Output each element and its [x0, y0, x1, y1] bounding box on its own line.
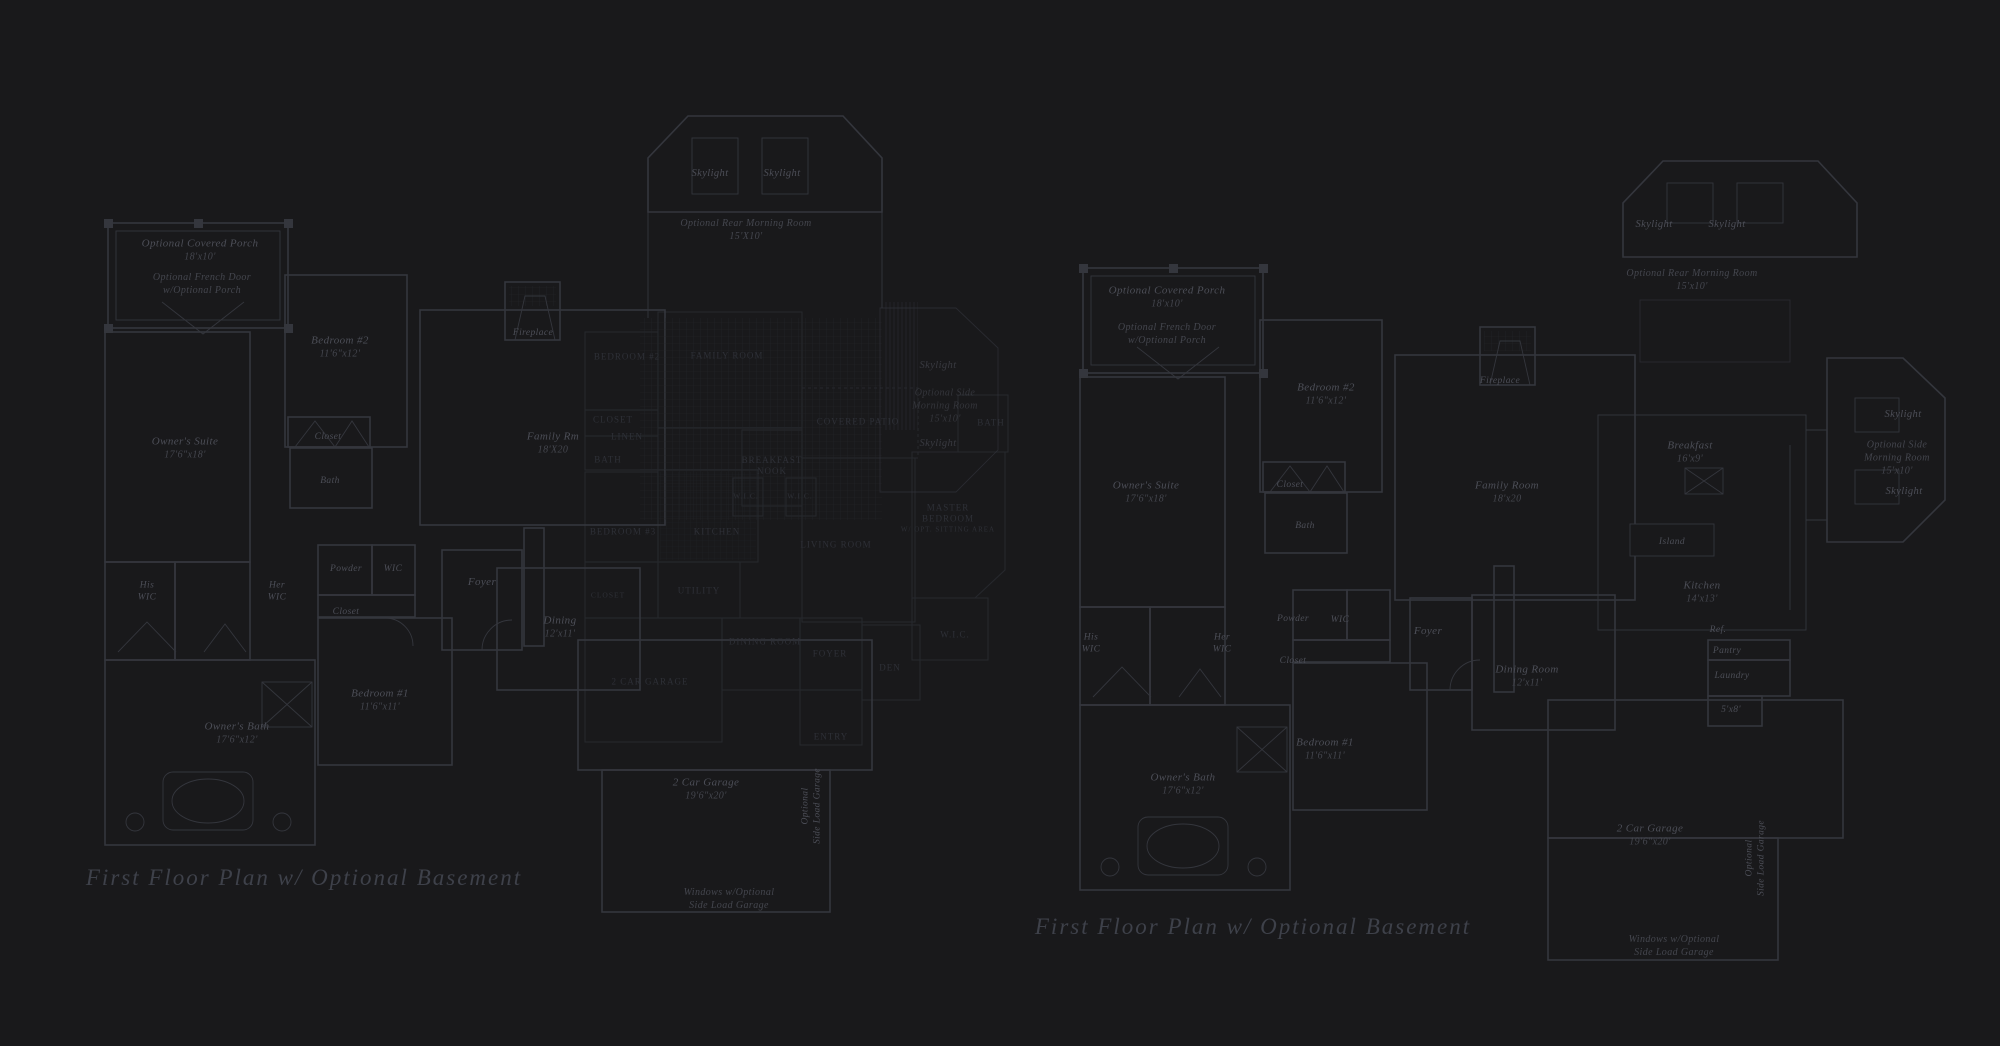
- left-hall-closet-label: Closet: [333, 606, 360, 618]
- dim-wic-a-label: W.I.C.: [733, 491, 759, 500]
- left-powder-label: Powder: [330, 563, 362, 575]
- dim-family-room-label: FAMILY ROOM: [691, 350, 764, 361]
- blueprint-canvas: BEDROOM #2 FAMILY ROOM CLOSET LINEN BATH…: [0, 0, 2000, 1046]
- left-family-room-label: Family Rm18'X20: [527, 429, 579, 456]
- left-fireplace-label: Fireplace: [513, 327, 553, 339]
- right-island-label: Island: [1659, 536, 1685, 548]
- left-plan-title: First Floor Plan w/ Optional Basement: [86, 865, 522, 891]
- left-side-load-garage-label: OptionalSide Load Garage: [800, 768, 825, 844]
- left-bedroom1-label: Bedroom #111'6"x11': [351, 686, 409, 713]
- dim-linen-label: LINEN: [611, 431, 643, 442]
- right-windows-label: Windows w/OptionalSide Load Garage: [1629, 933, 1720, 959]
- left-side-skylight-top-label: Skylight: [919, 359, 956, 373]
- right-porch-dims-label: 5'x8': [1721, 704, 1741, 716]
- right-laundry-label: Laundry: [1715, 670, 1750, 682]
- right-garage-label: 2 Car Garage19'6"x20': [1617, 821, 1684, 848]
- dim-foyer-label: FOYER: [813, 648, 848, 659]
- right-bedroom2-closet-label: Closet: [1277, 479, 1304, 491]
- left-owners-bath-label: Owner's Bath17'6"x12': [205, 719, 270, 746]
- right-breakfast-label: Breakfast16'x9': [1667, 438, 1712, 465]
- dim-bedroom2-label: BEDROOM #2: [594, 351, 660, 362]
- left-her-wic-label: HerWIC: [268, 580, 287, 605]
- right-powder-label: Powder: [1277, 613, 1309, 625]
- dim-master-bedroom-label: MASTERBEDROOMW/ OPT. SITTING AREA: [901, 502, 995, 533]
- right-bedroom2-bath-label: Bath: [1295, 520, 1315, 532]
- right-his-wic-label: HisWIC: [1082, 632, 1101, 657]
- dim-living-room-label: LIVING ROOM: [800, 539, 871, 550]
- dim-wic-master-label: W.I.C.: [940, 629, 969, 640]
- left-side-skylight-bottom-label: Skylight: [919, 437, 956, 451]
- right-french-door-label: Optional French Doorw/Optional Porch: [1118, 321, 1216, 347]
- left-covered-porch-label: Optional Covered Porch18'x10': [142, 236, 259, 263]
- right-family-room-label: Family Room18'x20: [1475, 478, 1539, 505]
- left-garage-label: 2 Car Garage19'6"x20': [673, 775, 740, 802]
- left-side-morning-room-label: Optional SideMorning Room15'x10': [912, 387, 978, 426]
- right-side-skylight-bottom-label: Skylight: [1885, 485, 1922, 499]
- dim-entry-label: ENTRY: [814, 731, 849, 742]
- right-plan-title: First Floor Plan w/ Optional Basement: [1035, 914, 1471, 940]
- dim-wic-b-label: W.I.C.: [787, 491, 813, 500]
- right-hall-wic-label: WIC: [1331, 614, 1350, 626]
- left-his-wic-label: HisWIC: [138, 580, 157, 605]
- right-dining-room-label: Dining Room12'x11': [1495, 662, 1558, 689]
- left-hall-wic-label: WIC: [384, 563, 403, 575]
- right-skylight-rear-right-label: Skylight: [1708, 218, 1745, 232]
- right-fireplace-label: Fireplace: [1480, 375, 1520, 387]
- dim-bedroom3-label: BEDROOM #3: [590, 526, 656, 537]
- right-bedroom2-label: Bedroom #211'6"x12': [1297, 380, 1355, 407]
- left-rear-morning-room-label: Optional Rear Morning Room15'X10': [680, 217, 811, 243]
- right-rear-morning-room-label: Optional Rear Morning Room15'x10': [1626, 267, 1757, 293]
- dim-kitchen-label: KITCHEN: [694, 526, 741, 537]
- left-skylight-rear-left-label: Skylight: [691, 167, 728, 181]
- dim-dining-room-label: DINING ROOM: [729, 636, 801, 647]
- right-skylight-rear-left-label: Skylight: [1635, 218, 1672, 232]
- right-foyer-label: Foyer: [1414, 624, 1442, 638]
- dim-covered-patio-label: COVERED PATIO: [817, 416, 899, 427]
- right-owners-suite-label: Owner's Suite17'6"x18': [1113, 478, 1180, 505]
- right-kitchen-label: Kitchen14'x13': [1683, 578, 1720, 605]
- left-skylight-rear-right-label: Skylight: [763, 167, 800, 181]
- right-hall-closet-label: Closet: [1280, 655, 1307, 667]
- dim-breakfast-nook-label: BREAKFASTNOOK: [742, 455, 803, 478]
- right-side-load-garage-label: OptionalSide Load Garage: [1744, 820, 1769, 896]
- dim-closet2-label: CLOSET: [591, 590, 625, 599]
- dim-closet-label: CLOSET: [593, 414, 633, 425]
- right-bedroom1-label: Bedroom #111'6"x11': [1296, 735, 1354, 762]
- left-dining-label: Dining12'x11': [544, 613, 577, 640]
- dim-utility-label: UTILITY: [678, 585, 721, 596]
- left-bedroom2-label: Bedroom #211'6"x12': [311, 333, 369, 360]
- dim-den-label: DEN: [879, 662, 901, 673]
- right-her-wic-label: HerWIC: [1213, 632, 1232, 657]
- right-ref-label: Ref.: [1710, 624, 1727, 636]
- right-pantry-label: Pantry: [1713, 645, 1741, 657]
- right-side-morning-room-label: Optional SideMorning Room15'x10': [1864, 439, 1930, 478]
- left-bedroom2-bath-label: Bath: [320, 475, 340, 487]
- dim-bath-label: BATH: [594, 454, 622, 465]
- right-owners-bath-label: Owner's Bath17'6"x12': [1151, 770, 1216, 797]
- left-foyer-label: Foyer: [468, 575, 496, 589]
- right-side-skylight-top-label: Skylight: [1884, 408, 1921, 422]
- left-bedroom2-closet-label: Closet: [315, 431, 342, 443]
- left-french-door-label: Optional French Doorw/Optional Porch: [153, 271, 251, 297]
- right-covered-porch-label: Optional Covered Porch18'x10': [1109, 283, 1226, 310]
- dim-bath-master-label: BATH: [977, 417, 1005, 428]
- left-owners-suite-label: Owner's Suite17'6"x18': [152, 434, 219, 461]
- dim-garage-label: 2 CAR GARAGE: [611, 676, 688, 687]
- left-windows-label: Windows w/OptionalSide Load Garage: [684, 886, 775, 912]
